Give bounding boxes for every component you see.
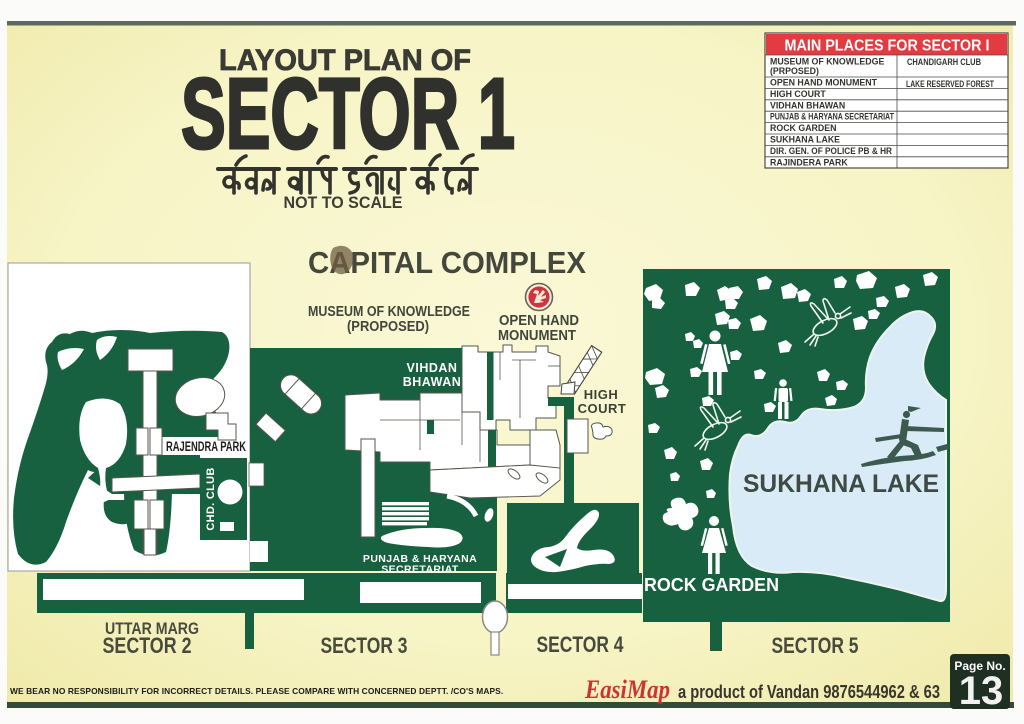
svg-text:SUKHANA LAKE: SUKHANA LAKE (770, 135, 840, 145)
svg-text:13: 13 (959, 669, 1004, 713)
svg-text:RAJENDRA PARK: RAJENDRA PARK (166, 439, 246, 454)
svg-text:SECTOR 4: SECTOR 4 (537, 632, 625, 657)
svg-text:OPEN HAND: OPEN HAND (499, 313, 579, 329)
svg-text:COURT: COURT (578, 401, 627, 416)
svg-text:HIGH: HIGH (584, 387, 619, 402)
svg-text:SECTOR 2: SECTOR 2 (103, 633, 192, 658)
svg-text:MAIN PLACES FOR SECTOR I: MAIN PLACES FOR SECTOR I (785, 38, 990, 55)
svg-text:(PRPOSED): (PRPOSED) (770, 66, 819, 76)
svg-text:OPEN HAND MONUMENT: OPEN HAND MONUMENT (770, 78, 878, 88)
svg-text:EasiMap: EasiMap (584, 675, 670, 704)
svg-text:MONUMENT: MONUMENT (498, 328, 576, 344)
svg-text:NOT TO SCALE: NOT TO SCALE (284, 194, 403, 212)
svg-text:WE BEAR NO RESPONSIBILITY FOR: WE BEAR NO RESPONSIBILITY FOR INCORRECT … (10, 686, 503, 696)
svg-text:MUSEUM OF KNOWLEDGE: MUSEUM OF KNOWLEDGE (770, 57, 884, 67)
svg-text:SECTOR 5: SECTOR 5 (772, 633, 859, 658)
svg-text:a product of Vandan 9876544962: a product of Vandan 9876544962 & 63 (678, 682, 940, 702)
svg-text:PUNJAB & HARYANA SECRETARIAT: PUNJAB & HARYANA SECRETARIAT (770, 112, 894, 122)
svg-text:ROCK GARDEN: ROCK GARDEN (770, 123, 836, 133)
svg-text:VIDHAN BHAWAN: VIDHAN BHAWAN (770, 100, 845, 110)
svg-text:CHD. CLUB: CHD. CLUB (205, 467, 217, 530)
svg-text:SECTOR 3: SECTOR 3 (321, 633, 408, 658)
svg-text:SECTOR 1: SECTOR 1 (181, 58, 515, 170)
svg-text:HIGH COURT: HIGH COURT (770, 89, 826, 99)
svg-text:SUKHANA LAKE: SUKHANA LAKE (743, 470, 939, 498)
svg-text:DIR. GEN. OF POLICE PB & HR: DIR. GEN. OF POLICE PB & HR (770, 146, 893, 156)
svg-text:ROCK GARDEN: ROCK GARDEN (644, 575, 779, 595)
svg-text:BHAWAN: BHAWAN (403, 375, 462, 389)
svg-text:CHANDIGARH CLUB: CHANDIGARH CLUB (907, 57, 981, 67)
svg-text:(PROPOSED): (PROPOSED) (347, 319, 429, 335)
svg-text:VIHDAN: VIHDAN (407, 361, 458, 375)
svg-text:RAJINDERA PARK: RAJINDERA PARK (770, 157, 848, 167)
svg-text:MUSEUM OF KNOWLEDGE: MUSEUM OF KNOWLEDGE (308, 304, 470, 320)
svg-text:LAKE RESERVED FOREST: LAKE RESERVED FOREST (906, 79, 994, 89)
